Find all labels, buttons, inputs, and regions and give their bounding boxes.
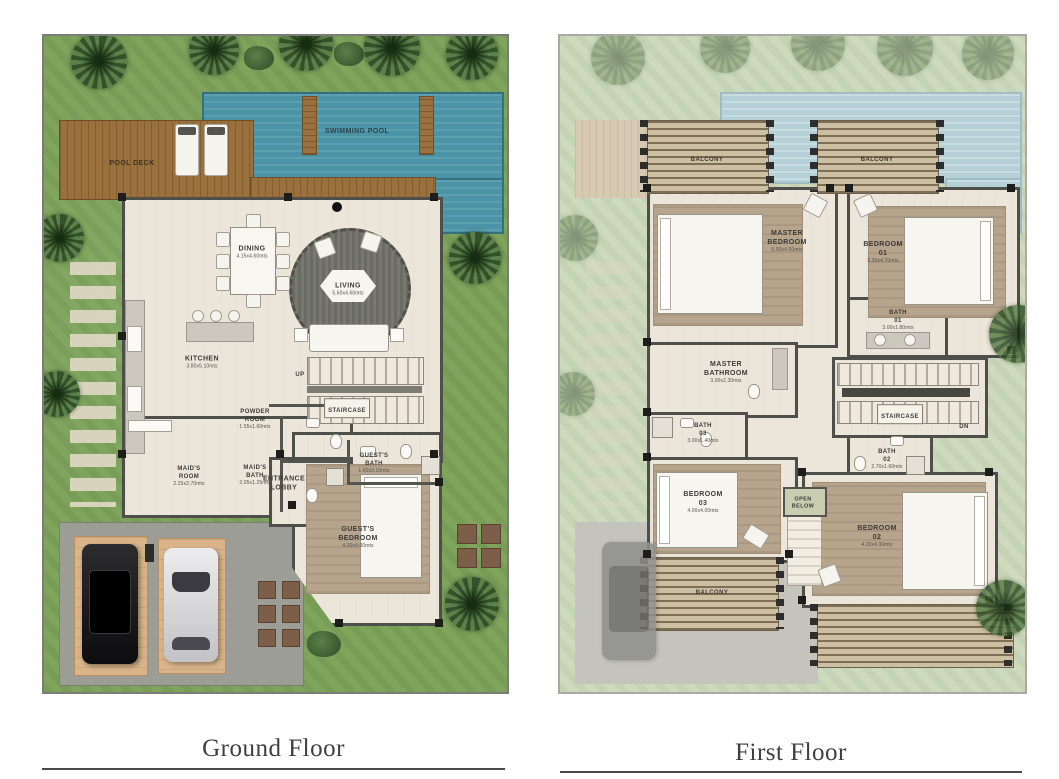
- staircase-upper-flight: [837, 363, 979, 386]
- balcony-3-label: BALCONY: [696, 582, 728, 598]
- dining-chair: [216, 232, 230, 247]
- room-label-bath-02: BATH 02 2.70x1.60mts: [871, 441, 902, 471]
- wall-pier: [985, 468, 993, 476]
- palm-tree-faded: [791, 34, 845, 71]
- silver-car: [164, 548, 218, 662]
- wall-pier: [118, 450, 126, 458]
- room-label-bath-01: BATH 01 3.00x1.80mts: [882, 302, 913, 332]
- paver: [282, 581, 300, 599]
- room-label-powder: POWDER ROOM 1.55x1.60mts: [239, 401, 270, 431]
- sun-lounger: [175, 124, 199, 176]
- living-sofa: [309, 324, 389, 352]
- kitchen-stool: [210, 310, 222, 322]
- kitchen-stool: [228, 310, 240, 322]
- wall-pier: [643, 184, 651, 192]
- dining-chair: [276, 276, 290, 291]
- staircase-rail: [307, 386, 422, 393]
- dining-chair: [276, 232, 290, 247]
- maid-bath-shower: [326, 468, 344, 486]
- wall-pier: [798, 596, 806, 604]
- guest-bath-toilet: [400, 444, 412, 459]
- master-bath-toilet: [748, 384, 760, 399]
- wall-pier: [826, 184, 834, 192]
- kitchen-stool: [192, 310, 204, 322]
- wall-pier: [643, 550, 651, 558]
- wall: [280, 416, 283, 512]
- wall-pier: [435, 619, 443, 627]
- palm-tree: [446, 34, 498, 80]
- pool-deck-text: POOL DECK: [109, 160, 154, 167]
- wall-pier: [430, 193, 438, 201]
- dining-chair: [276, 254, 290, 269]
- hedge-bush: [307, 631, 341, 657]
- side-table: [390, 328, 404, 342]
- room-label-maids-room: MAID'S ROOM 2.25x2.70mts: [173, 458, 204, 488]
- wall: [280, 460, 347, 463]
- black-car: [82, 544, 138, 664]
- palm-tree: [364, 34, 420, 76]
- palm-tree-faded: [558, 215, 598, 261]
- pool-step: [302, 96, 317, 155]
- palm-tree: [449, 232, 501, 284]
- bath-03-shower: [652, 417, 673, 438]
- kitchen-stove: [127, 386, 142, 412]
- staircase-label: STAIRCASE: [877, 404, 923, 424]
- wall-pier: [643, 408, 651, 416]
- staircase-rail: [842, 388, 970, 397]
- staircase-upper-flight: [307, 357, 424, 385]
- wall-pier: [430, 450, 438, 458]
- palm-tree: [279, 34, 333, 71]
- room-label-bedroom-01: BEDROOM 01 3.30x4.70mts: [863, 231, 902, 265]
- room-label-kitchen: KITCHEN 3.80x5.10mts: [185, 346, 219, 371]
- palm-tree: [976, 580, 1027, 636]
- bath-01-sink: [874, 334, 886, 346]
- room-label-guest-bedroom: GUEST'S BEDROOM 4.20x4.00mts: [338, 516, 377, 550]
- dn-label: DN: [959, 416, 968, 432]
- ground-floor-caption: Ground Floor: [42, 735, 505, 763]
- wall-pier: [335, 619, 343, 627]
- ground-floor-caption-text: Ground Floor: [202, 735, 345, 762]
- ground-caption-line: [42, 768, 505, 770]
- wall-pier: [435, 478, 443, 486]
- palm-tree: [71, 34, 127, 89]
- swimming-pool-text: SWIMMING POOL: [325, 128, 389, 135]
- room-label-lobby: ENTRANCE LOBBY: [263, 465, 305, 492]
- guest-bath-shower: [421, 456, 440, 475]
- open-below-label: OPEN BELOW: [792, 489, 814, 510]
- dining-chair: [216, 254, 230, 269]
- room-label-guest-bath: GUEST'S BATH 1.60x3.10mts: [358, 445, 389, 475]
- wall-pier: [845, 184, 853, 192]
- swimming-pool-label: SWIMMING POOL: [325, 118, 389, 136]
- paver: [282, 629, 300, 647]
- palm-tree-faded: [591, 34, 645, 85]
- wall-pier: [276, 450, 284, 458]
- balcony-1-label: BALCONY: [691, 149, 723, 165]
- room-label-master-bedroom: MASTER BEDROOM 5.00x4.60mts: [767, 220, 806, 254]
- maid-wardrobe: [128, 420, 172, 432]
- dining-chair: [246, 214, 261, 228]
- balcony-2-posts: [936, 120, 944, 192]
- room-label-dining: DINING 4.15x4.60mts: [236, 236, 267, 261]
- powder-sink: [306, 418, 320, 428]
- first-floor-caption: First Floor: [560, 739, 1022, 767]
- first-floor-caption-text: First Floor: [735, 739, 847, 766]
- room-label-bath-03: BATH 03 3.00x1.40mts: [687, 415, 718, 445]
- master-bed: [657, 214, 763, 314]
- wall-pier: [118, 332, 126, 340]
- sun-lounger: [204, 124, 228, 176]
- balcony-1-posts: [640, 120, 648, 192]
- paver: [258, 581, 276, 599]
- pool-step: [419, 96, 434, 155]
- room-label-bedroom-03: BEDROOM 03 4.00x4.00mts: [683, 481, 722, 515]
- palm-tree-faded: [877, 34, 933, 76]
- wall-pier: [643, 338, 651, 346]
- bedroom-01-bed: [904, 217, 994, 305]
- wall: [347, 440, 350, 484]
- powder-toilet: [330, 434, 342, 449]
- wall-pier: [288, 501, 296, 509]
- wall-pier: [798, 468, 806, 476]
- staircase-label: STAIRCASE: [324, 398, 370, 418]
- room-label-bedroom-02: BEDROOM 02 4.20x4.30mts: [857, 515, 896, 549]
- car-faded: [602, 542, 656, 660]
- palm-tree: [189, 34, 239, 75]
- palm-tree: [42, 214, 84, 262]
- balcony-2-label: BALCONY: [861, 149, 893, 165]
- palm-tree: [445, 577, 499, 631]
- paver: [481, 548, 501, 568]
- room-label-living: LIVING 5.60x4.60mts: [332, 273, 363, 298]
- wall-pier: [785, 550, 793, 558]
- balcony-4-posts: [810, 604, 818, 666]
- balcony-3-posts: [776, 557, 784, 629]
- paver: [481, 524, 501, 544]
- first-caption-line: [560, 771, 1022, 773]
- side-table: [294, 328, 308, 342]
- kitchen-sink: [127, 326, 142, 352]
- bath-02-shower: [906, 456, 925, 475]
- pool-deck-label: POOL DECK: [109, 150, 154, 168]
- room-label-master-bathroom: MASTER BATHROOM 3.00x2.30mts: [704, 351, 748, 385]
- column-dot: [332, 202, 342, 212]
- ground-floor-plan: SWIMMING POOL POOL DECK DINING 4.15x4.60…: [42, 34, 509, 694]
- bath-01-sink: [904, 334, 916, 346]
- balcony-1-posts: [766, 120, 774, 192]
- palm-tree-faded: [700, 34, 750, 73]
- hedge-bush: [334, 42, 364, 66]
- bedroom-02-bed: [902, 492, 988, 590]
- bath-02-toilet: [854, 456, 866, 471]
- kitchen-island: [186, 322, 254, 342]
- first-floor-plan: BALCONY BALCONY MASTER BEDROOM 5.00x4.60…: [558, 34, 1027, 694]
- palm-tree-faded: [962, 34, 1014, 80]
- paver: [457, 524, 477, 544]
- wall: [347, 482, 442, 485]
- bollard: [145, 544, 154, 562]
- master-bath-vanity: [772, 348, 788, 390]
- wall-pier: [643, 453, 651, 461]
- floor-plans-canvas: SWIMMING POOL POOL DECK DINING 4.15x4.60…: [0, 0, 1059, 779]
- paver: [258, 605, 276, 623]
- hedge-bush: [244, 46, 274, 70]
- dining-chair: [246, 294, 261, 308]
- wall-pier: [284, 193, 292, 201]
- paver: [258, 629, 276, 647]
- dining-chair: [216, 276, 230, 291]
- maid-bath-toilet: [306, 488, 318, 503]
- wall-pier: [1007, 184, 1015, 192]
- paver: [282, 605, 300, 623]
- up-label: UP: [295, 364, 304, 380]
- wall-pier: [118, 193, 126, 201]
- balcony-2-posts: [810, 120, 818, 192]
- paver: [457, 548, 477, 568]
